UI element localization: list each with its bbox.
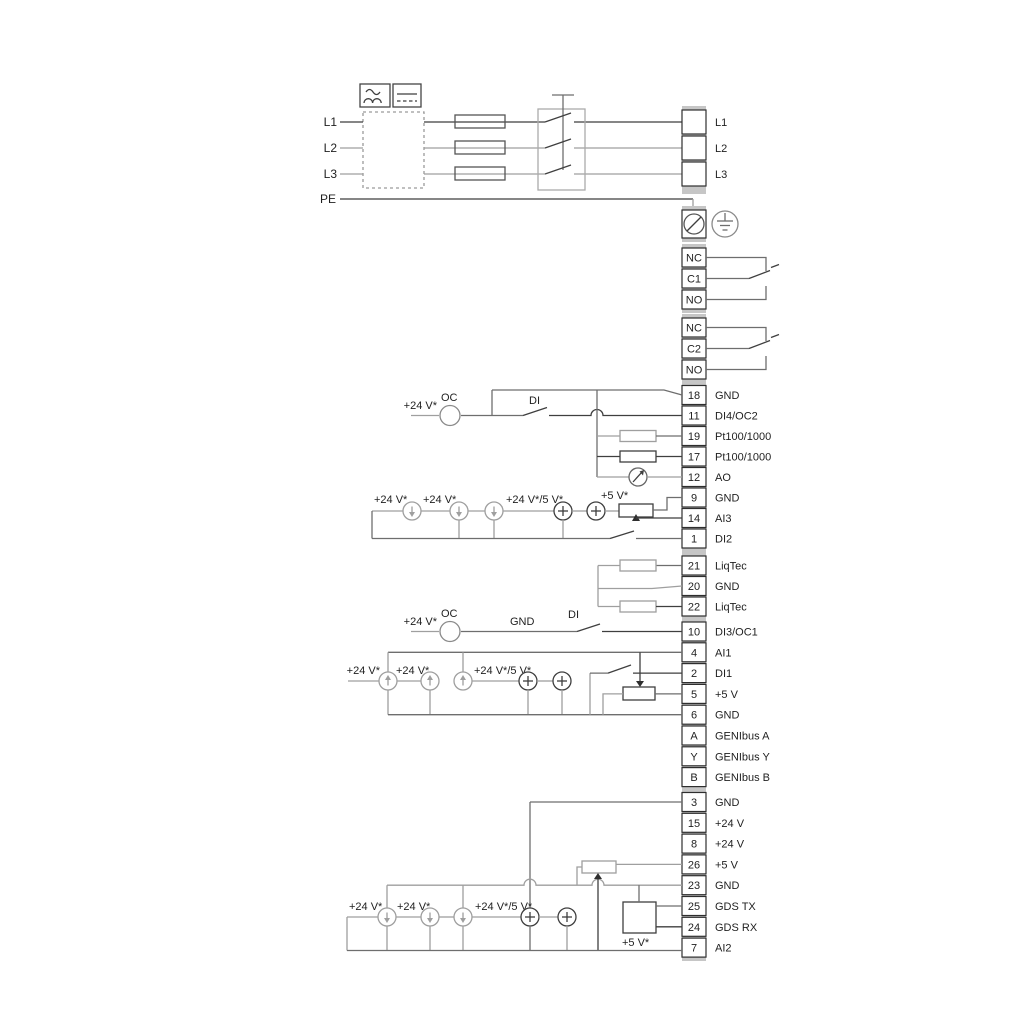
label-oc-s1: OC: [441, 392, 458, 404]
term-17: 17: [688, 452, 700, 464]
phase-wires: [340, 122, 693, 210]
term-14-label: AI3: [715, 513, 732, 525]
liqtec-resistor-2: [620, 601, 656, 612]
label-in-l1: L1: [324, 115, 338, 129]
mains-terminal-block: L1 L2 L3: [682, 106, 727, 194]
switch-blade-l2: [545, 139, 571, 148]
relay1-contact: [749, 271, 770, 279]
term-24: 24: [688, 922, 700, 934]
gds-sensor-box: [623, 902, 656, 933]
term-15-label: +24 V: [715, 818, 745, 830]
label-24v-s2: +24 V*: [404, 616, 438, 628]
converter-dashed-box: [363, 112, 424, 188]
term-12: 12: [688, 472, 700, 484]
label-5v-c: +5 V*: [622, 937, 650, 949]
label-in-pe: PE: [320, 192, 336, 206]
label-in-l2: L2: [324, 141, 338, 155]
strip1-di-circuit: +24 V* OC DI: [404, 390, 682, 486]
ac-wave-icon: [366, 90, 380, 95]
term-10-label: DI3/OC1: [715, 627, 758, 639]
term-18: 18: [688, 390, 700, 402]
terminal-strip-2: 10 4 2 5 6 A Y B DI3/OC1 AI1 DI1 +5 V GN…: [682, 618, 770, 790]
term-17-label: Pt100/1000: [715, 452, 771, 464]
term-25-label: GDS TX: [715, 901, 756, 913]
source-block-b: +24 V* +24 V* +24 V*/5 V*: [347, 652, 682, 714]
relay2-c2: C2: [687, 344, 701, 356]
label-24v-s1: +24 V*: [404, 400, 438, 412]
term-8: 8: [691, 839, 697, 851]
dc-symbol-box: [393, 84, 421, 107]
terminal-strip-1: 18 11 19 17 12 9 14 1 GND DI4/OC2 Pt100/…: [682, 381, 771, 552]
strip2-di-circuit: +24 V* OC GND DI: [404, 608, 682, 642]
pt100-resistor-1: [620, 431, 656, 442]
term-b-label: GENIbus B: [715, 772, 770, 784]
term-b: B: [690, 772, 697, 784]
term-4: 4: [691, 647, 697, 659]
term-2-label: DI1: [715, 668, 732, 680]
label-24v5v-a: +24 V*/5 V*: [506, 494, 564, 506]
relay1-block: NC C1 NO: [682, 244, 779, 313]
term-10: 10: [688, 627, 700, 639]
term-6-label: GND: [715, 710, 740, 722]
switch-blade-l3: [545, 165, 571, 174]
label-di-s1: DI: [529, 395, 540, 407]
term-19-label: Pt100/1000: [715, 431, 771, 443]
term-24-label: GDS RX: [715, 922, 758, 934]
oc-circle-icon-2: [440, 622, 460, 642]
di3-switch: [577, 624, 600, 632]
ac-symbol-box: [360, 84, 390, 107]
term-26-label: +5 V: [715, 859, 739, 871]
term-9-label: GND: [715, 493, 740, 505]
term-8-label: +24 V: [715, 839, 745, 851]
term-23-label: GND: [715, 880, 740, 892]
term-19: 19: [688, 431, 700, 443]
label-in-l3: L3: [324, 167, 338, 181]
liqtec-resistor-1: [620, 560, 656, 571]
di2-switch: [610, 531, 634, 539]
term-y: Y: [690, 751, 698, 763]
label-24v-a1: +24 V*: [374, 494, 408, 506]
label-out-l2: L2: [715, 143, 727, 155]
main-switch: [538, 95, 585, 190]
term-14: 14: [688, 513, 700, 525]
label-24v-c1: +24 V*: [349, 901, 383, 913]
earth-symbol: [712, 211, 738, 237]
term-12-label: AO: [715, 472, 731, 484]
term-21: 21: [688, 561, 700, 573]
term-4-label: AI1: [715, 647, 732, 659]
label-24v-a2: +24 V*: [423, 494, 457, 506]
term-20: 20: [688, 581, 700, 593]
relay1-no: NO: [686, 295, 703, 307]
switch-blade-l1: [545, 113, 571, 122]
term-1: 1: [691, 534, 697, 546]
term-23: 23: [688, 880, 700, 892]
term-11-label: DI4/OC2: [715, 411, 758, 423]
power-input-labels: L1 L2 L3 PE: [320, 115, 337, 206]
term-a-label: GENIbus A: [715, 731, 770, 743]
relay2-block: NC C2 NO: [682, 314, 779, 383]
term-5-label: +5 V: [715, 689, 739, 701]
relay1-nc: NC: [686, 253, 702, 265]
label-out-l3: L3: [715, 169, 727, 181]
label-out-l1: L1: [715, 117, 727, 129]
wiring-diagram: L1 L2 L3 PE: [0, 0, 1024, 1024]
pe-terminal: [682, 206, 706, 242]
term-26: 26: [688, 859, 700, 871]
term-22-label: LiqTec: [715, 602, 747, 614]
label-5v-a: +5 V*: [601, 490, 629, 502]
potentiometer-b: [623, 687, 655, 700]
term-3-label: GND: [715, 797, 740, 809]
pt100-resistor-2: [620, 451, 656, 462]
label-24v-b1: +24 V*: [347, 665, 381, 677]
di4-switch: [523, 408, 547, 416]
bottom-circuit: +5 V*: [387, 802, 682, 951]
relay2-contact: [749, 341, 770, 349]
terminal-strip-3: 3 15 8 26 23 25 24 7 GND +24 V +24 V +5 …: [682, 788, 758, 961]
term-y-label: GENIbus Y: [715, 751, 770, 763]
oc-circle-icon-1: [440, 406, 460, 426]
term-15: 15: [688, 818, 700, 830]
term-21-label: LiqTec: [715, 561, 747, 573]
term-11: 11: [688, 411, 699, 423]
term-25: 25: [688, 901, 700, 913]
term-5: 5: [691, 689, 697, 701]
term-20-label: GND: [715, 581, 740, 593]
term-18-label: GND: [715, 390, 740, 402]
term-9: 9: [691, 493, 697, 505]
label-oc-s2: OC: [441, 608, 458, 620]
relay1-c1: C1: [687, 274, 701, 286]
term-7-label: AI2: [715, 943, 732, 955]
source-block-a: +24 V* +24 V* +24 V*/5 V* +5 V*: [372, 490, 682, 539]
term-3: 3: [691, 797, 697, 809]
relay2-no: NO: [686, 365, 703, 377]
term-1-label: DI2: [715, 534, 732, 546]
term-a: A: [690, 731, 698, 743]
potentiometer-c: [582, 861, 616, 873]
label-di-s2: DI: [568, 609, 579, 621]
di1-switch: [608, 665, 631, 673]
term-2: 2: [691, 668, 697, 680]
liqtec-strip: 21 20 22 LiqTec GND LiqTec: [598, 552, 747, 620]
term-6: 6: [691, 710, 697, 722]
label-gnd-s2: GND: [510, 616, 535, 628]
relay2-nc: NC: [686, 323, 702, 335]
term-22: 22: [688, 602, 700, 614]
term-7: 7: [691, 943, 697, 955]
